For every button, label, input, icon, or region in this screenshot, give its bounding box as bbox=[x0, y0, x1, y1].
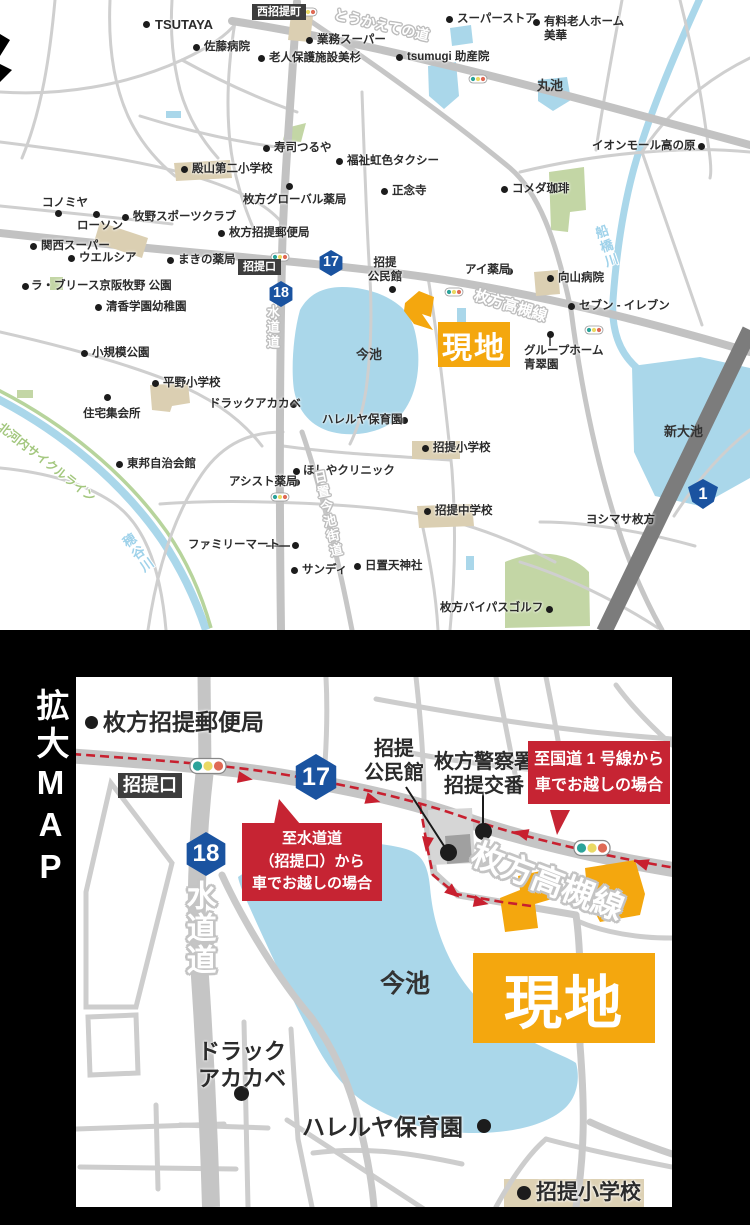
place-label: 今池 bbox=[380, 969, 430, 1000]
zoom-map-title: 拡大MAP bbox=[26, 688, 74, 890]
poi-label: ウエルシア bbox=[79, 251, 137, 265]
poi-label: サンディ bbox=[302, 563, 347, 577]
poi-label: イオンモール高の原 bbox=[592, 139, 696, 153]
poi-label: アイ薬局 bbox=[465, 263, 510, 277]
pond bbox=[166, 111, 181, 118]
poi-dot bbox=[68, 255, 75, 262]
poi-label: 招提 公民館 bbox=[362, 256, 408, 284]
poi-dot bbox=[55, 210, 62, 217]
callout-tail bbox=[550, 810, 570, 835]
poi-dot bbox=[93, 211, 100, 218]
poi-label: 向山病院 bbox=[558, 271, 604, 285]
poi-dot bbox=[193, 44, 200, 51]
map-flyer: TSUTAYA西招提町とうかえての道スーパーストア有料老人ホーム 美華業務スーパ… bbox=[0, 0, 750, 1225]
poi-label: 業務スーパー bbox=[317, 33, 386, 47]
poi-label: ハレルヤ保育園 bbox=[302, 1113, 463, 1141]
place-label: 今池 bbox=[356, 347, 382, 363]
area-map-graphics bbox=[0, 0, 750, 630]
poi-dot bbox=[698, 143, 705, 150]
callout-suidomichi: 至水道道 （招提口）から 車でお越しの場合 bbox=[242, 823, 382, 901]
poi-label: スーパーストア bbox=[457, 12, 537, 26]
poi-dot bbox=[95, 304, 102, 311]
place-badge: 招提口 bbox=[118, 773, 182, 798]
river-hotani bbox=[0, 398, 206, 630]
poi-label: 枚方招提郵便局 bbox=[103, 708, 264, 736]
poi-label: 枚方招提郵便局 bbox=[229, 226, 310, 240]
poi-dot bbox=[263, 145, 270, 152]
poi-label: セブン - イレブン bbox=[579, 299, 670, 313]
callout-line: 車でお越しの場合 bbox=[242, 873, 382, 896]
poi-label: ローソン bbox=[77, 219, 123, 233]
poi-label: 東邦自治会館 bbox=[127, 457, 196, 471]
place-badge: 西招提町 bbox=[252, 4, 306, 20]
poi-label: TSUTAYA bbox=[155, 17, 213, 33]
poi-label: ヨシマサ枚方 bbox=[586, 513, 655, 527]
pond bbox=[450, 25, 473, 46]
poi-dot bbox=[293, 468, 300, 475]
golf-area bbox=[505, 554, 590, 628]
place-label: 丸池 bbox=[537, 78, 563, 94]
callout-line: 至国道 1 号線から bbox=[528, 747, 670, 773]
poi-dot bbox=[22, 283, 29, 290]
poi-label: 佐藤病院 bbox=[204, 40, 250, 54]
poi-dot bbox=[258, 55, 265, 62]
poi-dot bbox=[501, 186, 508, 193]
poi-dot bbox=[291, 567, 298, 574]
poi-dot bbox=[396, 54, 403, 61]
poi-dot bbox=[336, 158, 343, 165]
callout-tail bbox=[274, 799, 300, 824]
poi-dot bbox=[533, 19, 540, 26]
poi-label: グループホーム 青翠園 bbox=[524, 344, 603, 372]
poi-label: 日置天神社 bbox=[365, 559, 423, 573]
poi-dot bbox=[292, 542, 299, 549]
poi-dot bbox=[547, 331, 554, 338]
green-area bbox=[549, 167, 586, 232]
poi-dot bbox=[167, 257, 174, 264]
poi-dot bbox=[218, 230, 225, 237]
poi-dot bbox=[440, 844, 457, 861]
zoom-map: 枚方招提郵便局招提口1718招提 公民館枚方警察署 招提交番水道道枚方高槻線今池… bbox=[76, 677, 672, 1207]
poi-label: 寿司つるや bbox=[274, 141, 332, 155]
poi-dot bbox=[181, 166, 188, 173]
poi-label: 平野小学校 bbox=[163, 376, 221, 390]
green-area bbox=[17, 390, 33, 398]
poi-label: 招提 公民館 bbox=[358, 737, 430, 786]
poi-dot bbox=[85, 716, 98, 729]
poi-label: 招提中学校 bbox=[435, 504, 493, 518]
site-label-box: 現地 bbox=[438, 322, 510, 367]
poi-label: コメダ珈琲 bbox=[512, 182, 570, 196]
poi-label: 枚方グローバル薬局 bbox=[243, 193, 346, 207]
poi-label: 老人保護施設美杉 bbox=[269, 51, 361, 65]
poi-label: 清香学園幼稚園 bbox=[106, 300, 187, 314]
poi-label: 牧野スポーツクラブ bbox=[133, 210, 236, 224]
road-name-label: 水道道 bbox=[264, 305, 280, 350]
poi-label: ファミリーマート bbox=[188, 538, 280, 552]
poi-dot bbox=[30, 243, 37, 250]
poi-dot bbox=[116, 461, 123, 468]
poi-label: アシスト薬局 bbox=[229, 475, 298, 489]
poi-dot bbox=[381, 188, 388, 195]
place-label: 新大池 bbox=[664, 424, 703, 440]
poi-dot bbox=[517, 1186, 531, 1200]
place-badge: 招提口 bbox=[238, 259, 281, 275]
callout-line: 車でお越しの場合 bbox=[528, 773, 670, 799]
poi-dot bbox=[152, 380, 159, 387]
poi-label: コノミヤ bbox=[42, 196, 88, 210]
poi-label: 福祉虹色タクシー bbox=[347, 154, 439, 168]
poi-label: 有料老人ホーム 美華 bbox=[544, 15, 624, 43]
pond bbox=[466, 556, 474, 570]
poi-dot bbox=[354, 563, 361, 570]
poi-dot bbox=[446, 16, 453, 23]
poi-label: 正念寺 bbox=[392, 184, 427, 198]
poi-label: ラ・ブリース京阪牧野 公園 bbox=[31, 279, 172, 293]
poi-dot bbox=[477, 1119, 491, 1133]
poi-label: まきの薬局 bbox=[178, 253, 236, 267]
callout-route1: 至国道 1 号線から 車でお越しの場合 bbox=[528, 741, 670, 804]
poi-label: 小規模公園 bbox=[92, 346, 150, 360]
poi-dot bbox=[546, 606, 553, 613]
poi-dot bbox=[286, 183, 293, 190]
poi-dot bbox=[389, 286, 396, 293]
poi-dot bbox=[143, 21, 150, 28]
poi-dot bbox=[547, 275, 554, 282]
poi-label: 招提小学校 bbox=[433, 441, 491, 455]
poi-label: 招提小学校 bbox=[536, 1180, 641, 1206]
poi-label: ドラックアカカベ bbox=[209, 397, 301, 411]
poi-dot bbox=[81, 350, 88, 357]
poi-dot bbox=[424, 508, 431, 515]
poi-label: ハレルヤ保育園 bbox=[322, 413, 403, 427]
poi-label: 殿山第二小学校 bbox=[192, 162, 273, 176]
callout-line: 至水道道 bbox=[242, 828, 382, 851]
map-edge bbox=[0, 34, 12, 82]
poi-dot bbox=[422, 445, 429, 452]
poi-label: 枚方警察署 招提交番 bbox=[426, 750, 542, 799]
poi-dot bbox=[568, 303, 575, 310]
road-name-label: 水道道 bbox=[179, 880, 216, 976]
cycling-path bbox=[0, 389, 211, 628]
site-label-box-zoom: 現地 bbox=[473, 953, 655, 1043]
poi-dot bbox=[104, 394, 111, 401]
poi-dot bbox=[306, 37, 313, 44]
poi-label: 住宅集会所 bbox=[83, 407, 141, 421]
callout-line: （招提口）から bbox=[242, 851, 382, 874]
poi-dot bbox=[122, 214, 129, 221]
area-map: TSUTAYA西招提町とうかえての道スーパーストア有料老人ホーム 美華業務スーパ… bbox=[0, 0, 750, 630]
poi-label: ドラック アカカベ bbox=[192, 1039, 292, 1093]
poi-label: tsumugi 助産院 bbox=[407, 50, 489, 64]
poi-label: 枚方バイパスゴルフ bbox=[440, 601, 543, 615]
